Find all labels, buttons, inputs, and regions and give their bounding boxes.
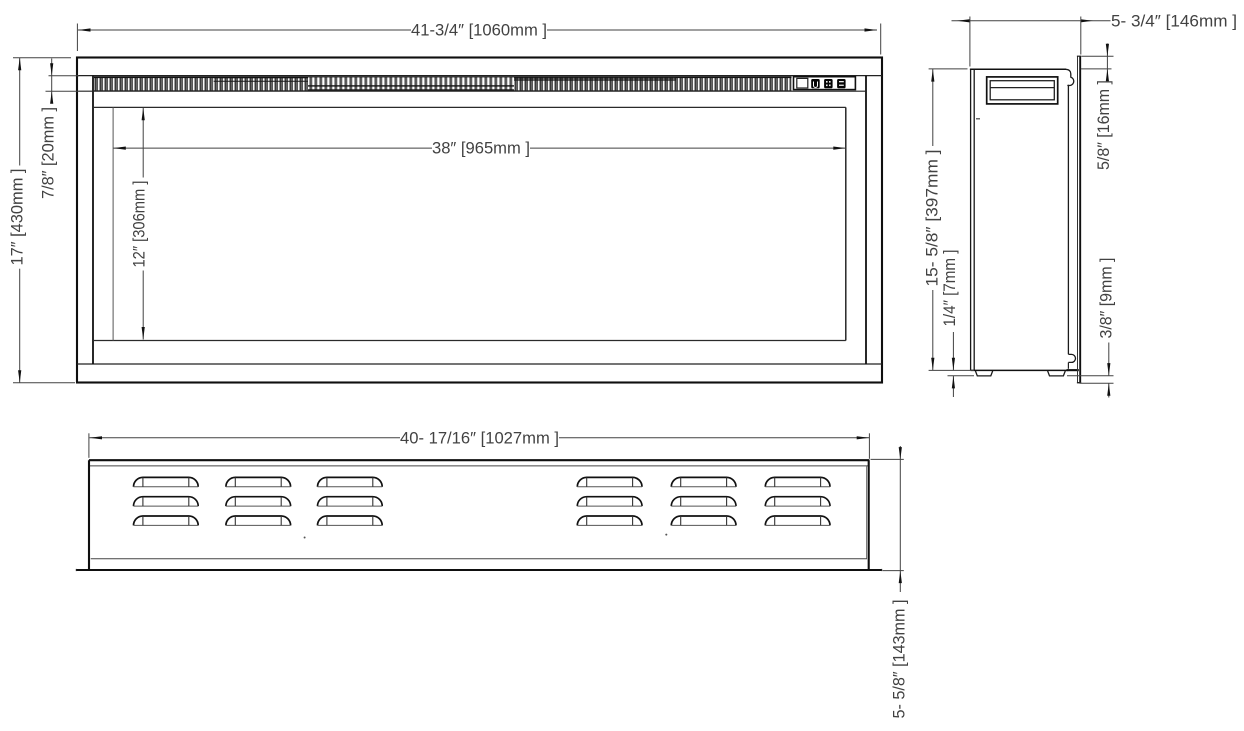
svg-text:5/8″ [16mm ]: 5/8″ [16mm ]	[1094, 80, 1113, 170]
svg-text:41-3/4″ [1060mm ]: 41-3/4″ [1060mm ]	[411, 21, 547, 40]
svg-text:38″ [965mm ]: 38″ [965mm ]	[432, 139, 530, 158]
svg-text:7/8″ [20mm ]: 7/8″ [20mm ]	[39, 107, 58, 199]
svg-text:17″ [430mm ]: 17″ [430mm ]	[8, 169, 27, 266]
svg-text:12″ [306mm ]: 12″ [306mm ]	[129, 181, 148, 268]
svg-text:3/8″ [9mm ]: 3/8″ [9mm ]	[1096, 258, 1115, 339]
svg-text:5- 5/8″ [143mm ]: 5- 5/8″ [143mm ]	[890, 600, 909, 719]
svg-text:5- 3/4″ [146mm ]: 5- 3/4″ [146mm ]	[1111, 11, 1237, 30]
svg-text:1/4″ [7mm ]: 1/4″ [7mm ]	[940, 250, 959, 327]
svg-text:40- 17/16″ [1027mm ]: 40- 17/16″ [1027mm ]	[400, 428, 559, 447]
svg-text:15- 5/8″ [397mm ]: 15- 5/8″ [397mm ]	[922, 150, 941, 287]
